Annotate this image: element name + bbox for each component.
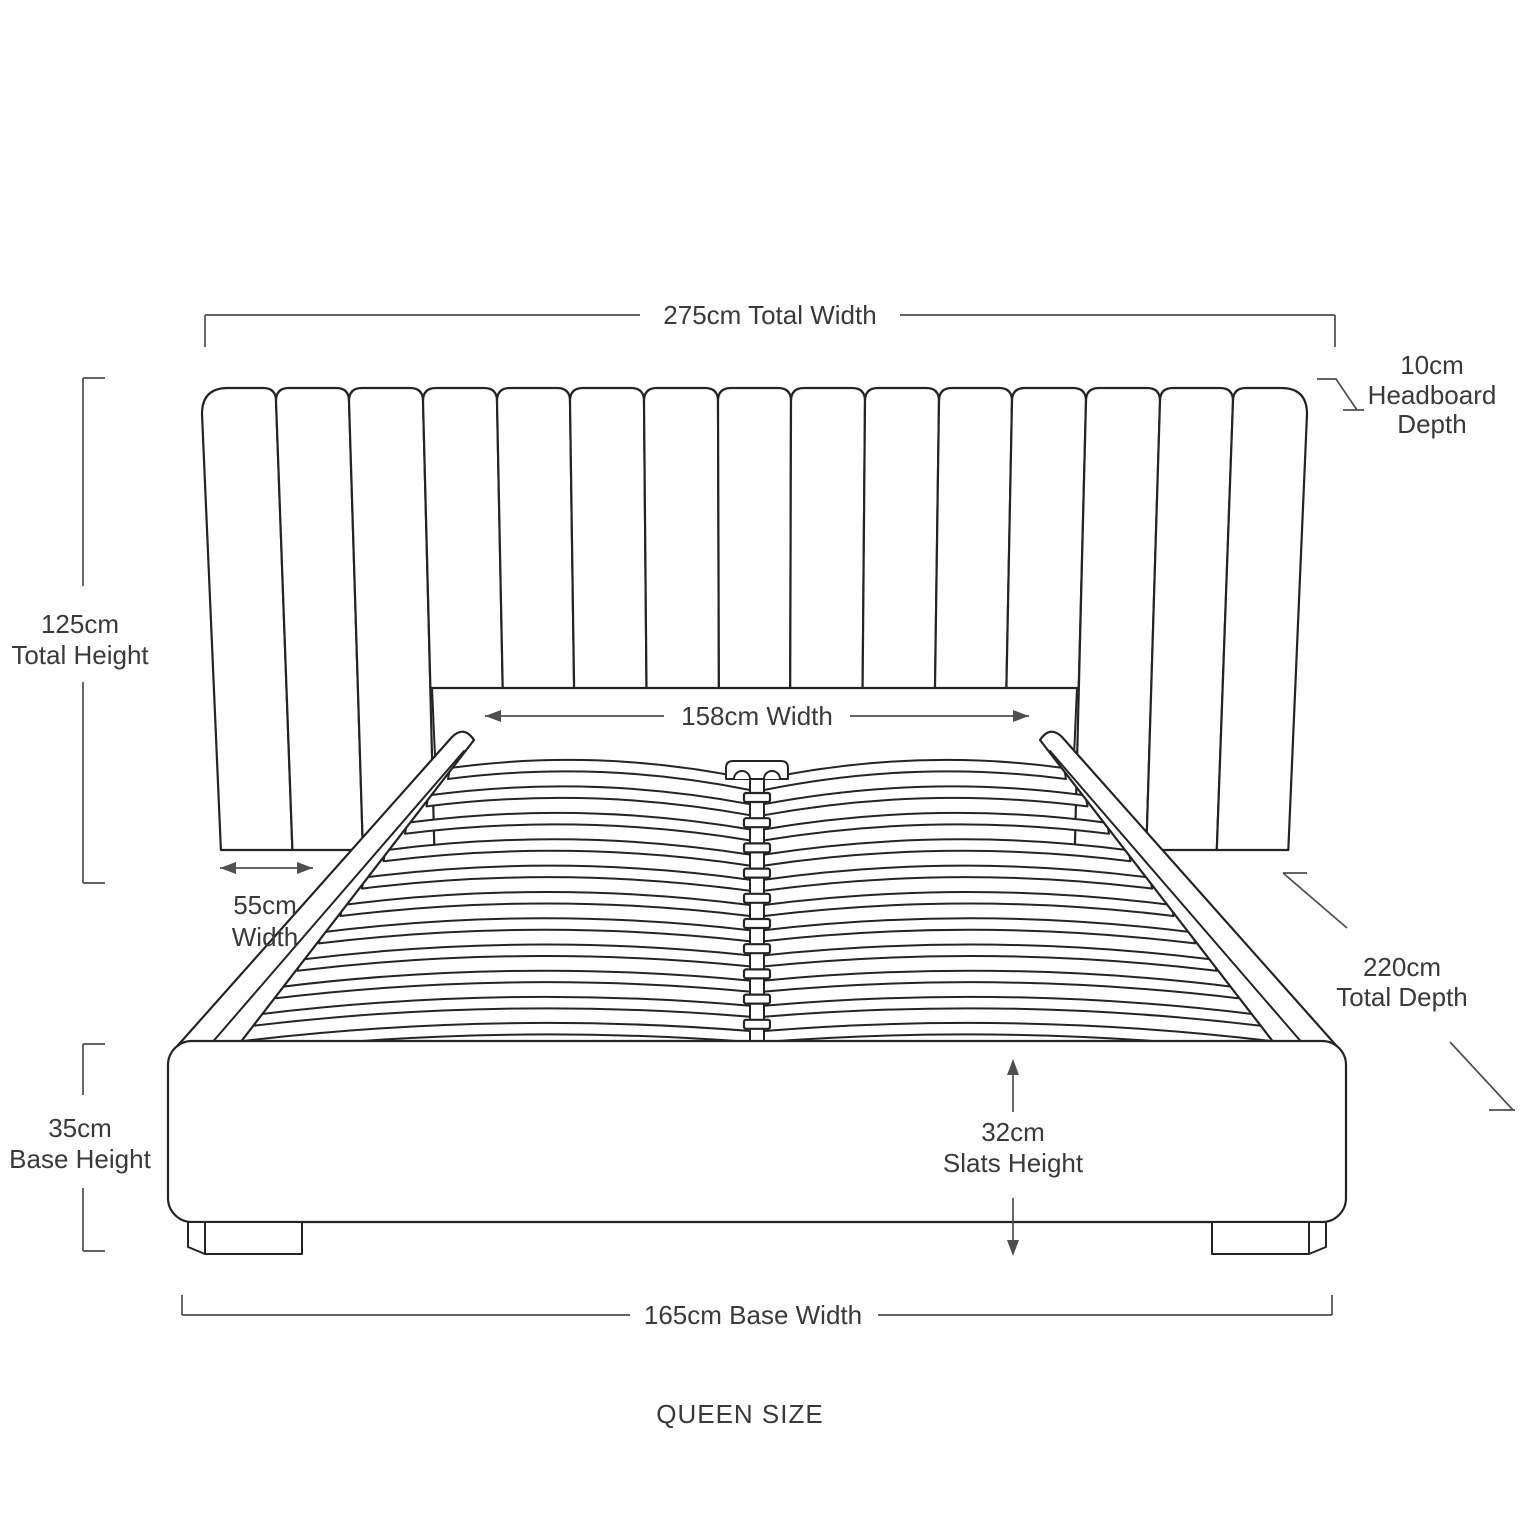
headboard-panel (497, 388, 574, 688)
slat-left (448, 760, 750, 790)
label-total-height-word: Total Height (11, 640, 149, 670)
headboard-panel (1006, 388, 1086, 688)
slat-left (276, 971, 750, 999)
label-base-height-word: Base Height (9, 1144, 151, 1174)
headboard-panel (1217, 388, 1307, 850)
centre-rail-clip (744, 1020, 770, 1029)
leg-left-side (188, 1222, 205, 1254)
label-wing-width-word: Width (232, 922, 298, 952)
label-headboard-depth-word1: Headboard (1368, 380, 1497, 410)
bed-base (168, 1041, 1346, 1222)
slat-left (362, 866, 750, 891)
slat-left (384, 839, 751, 865)
label-headboard-depth-value: 10cm (1400, 350, 1464, 380)
label-total-depth-word: Total Depth (1336, 982, 1468, 1012)
headboard-panel (423, 388, 503, 688)
slat-right (764, 918, 1195, 943)
centre-rail-clip (744, 969, 770, 978)
slat-left (427, 786, 751, 815)
label-slats-height-word: Slats Height (943, 1148, 1084, 1178)
label-slats-height-value: 32cm (981, 1117, 1045, 1147)
headboard-panel (935, 388, 1012, 688)
headboard-panel (570, 388, 647, 688)
bed-line-art (168, 388, 1346, 1254)
slat-right (764, 945, 1217, 971)
centre-rail-clip (744, 818, 770, 827)
slat-left (341, 892, 751, 916)
slat-left (405, 813, 750, 841)
label-total-depth-value: 220cm (1363, 952, 1441, 982)
slat-right (764, 786, 1088, 815)
headboard-panel (718, 388, 791, 688)
slat-right (764, 971, 1238, 999)
centre-rail-clip (744, 869, 770, 878)
bed-dimension-diagram: 275cm Total Width 10cm Headboard Depth 1… (0, 0, 1536, 1536)
centre-rail-clip (744, 843, 770, 852)
headboard-panel (863, 388, 939, 688)
label-total-width: 275cm Total Width (663, 300, 876, 330)
label-size-title: QUEEN SIZE (656, 1399, 823, 1429)
slat-left (319, 918, 750, 943)
slat-left (298, 945, 751, 971)
slat-right (764, 813, 1109, 841)
leg-right-front (1212, 1222, 1309, 1254)
leg-right-side (1309, 1222, 1326, 1254)
slat-left (255, 997, 751, 1026)
label-base-height-value: 35cm (48, 1113, 112, 1143)
label-total-height-value: 125cm (41, 609, 119, 639)
centre-rail-clip (744, 894, 770, 903)
slat-right (764, 866, 1152, 891)
centre-rail-clip (744, 919, 770, 928)
dim-headboard-depth-leader (1317, 379, 1364, 410)
diagram-canvas: 275cm Total Width 10cm Headboard Depth 1… (0, 0, 1536, 1536)
headboard-panel (790, 388, 865, 688)
label-base-width: 165cm Base Width (644, 1300, 862, 1330)
leg-left-front (205, 1222, 302, 1254)
headboard-panel (644, 388, 719, 688)
centre-rail-clip (744, 995, 770, 1004)
centre-rail-clip (744, 793, 770, 802)
label-wing-width-value: 55cm (233, 890, 297, 920)
centre-rail-clip (744, 944, 770, 953)
label-headboard-depth-word2: Depth (1397, 409, 1466, 439)
slat-right (764, 997, 1260, 1026)
label-inner-width: 158cm Width (681, 701, 833, 731)
slat-right (764, 760, 1066, 790)
slat-right (764, 892, 1174, 916)
